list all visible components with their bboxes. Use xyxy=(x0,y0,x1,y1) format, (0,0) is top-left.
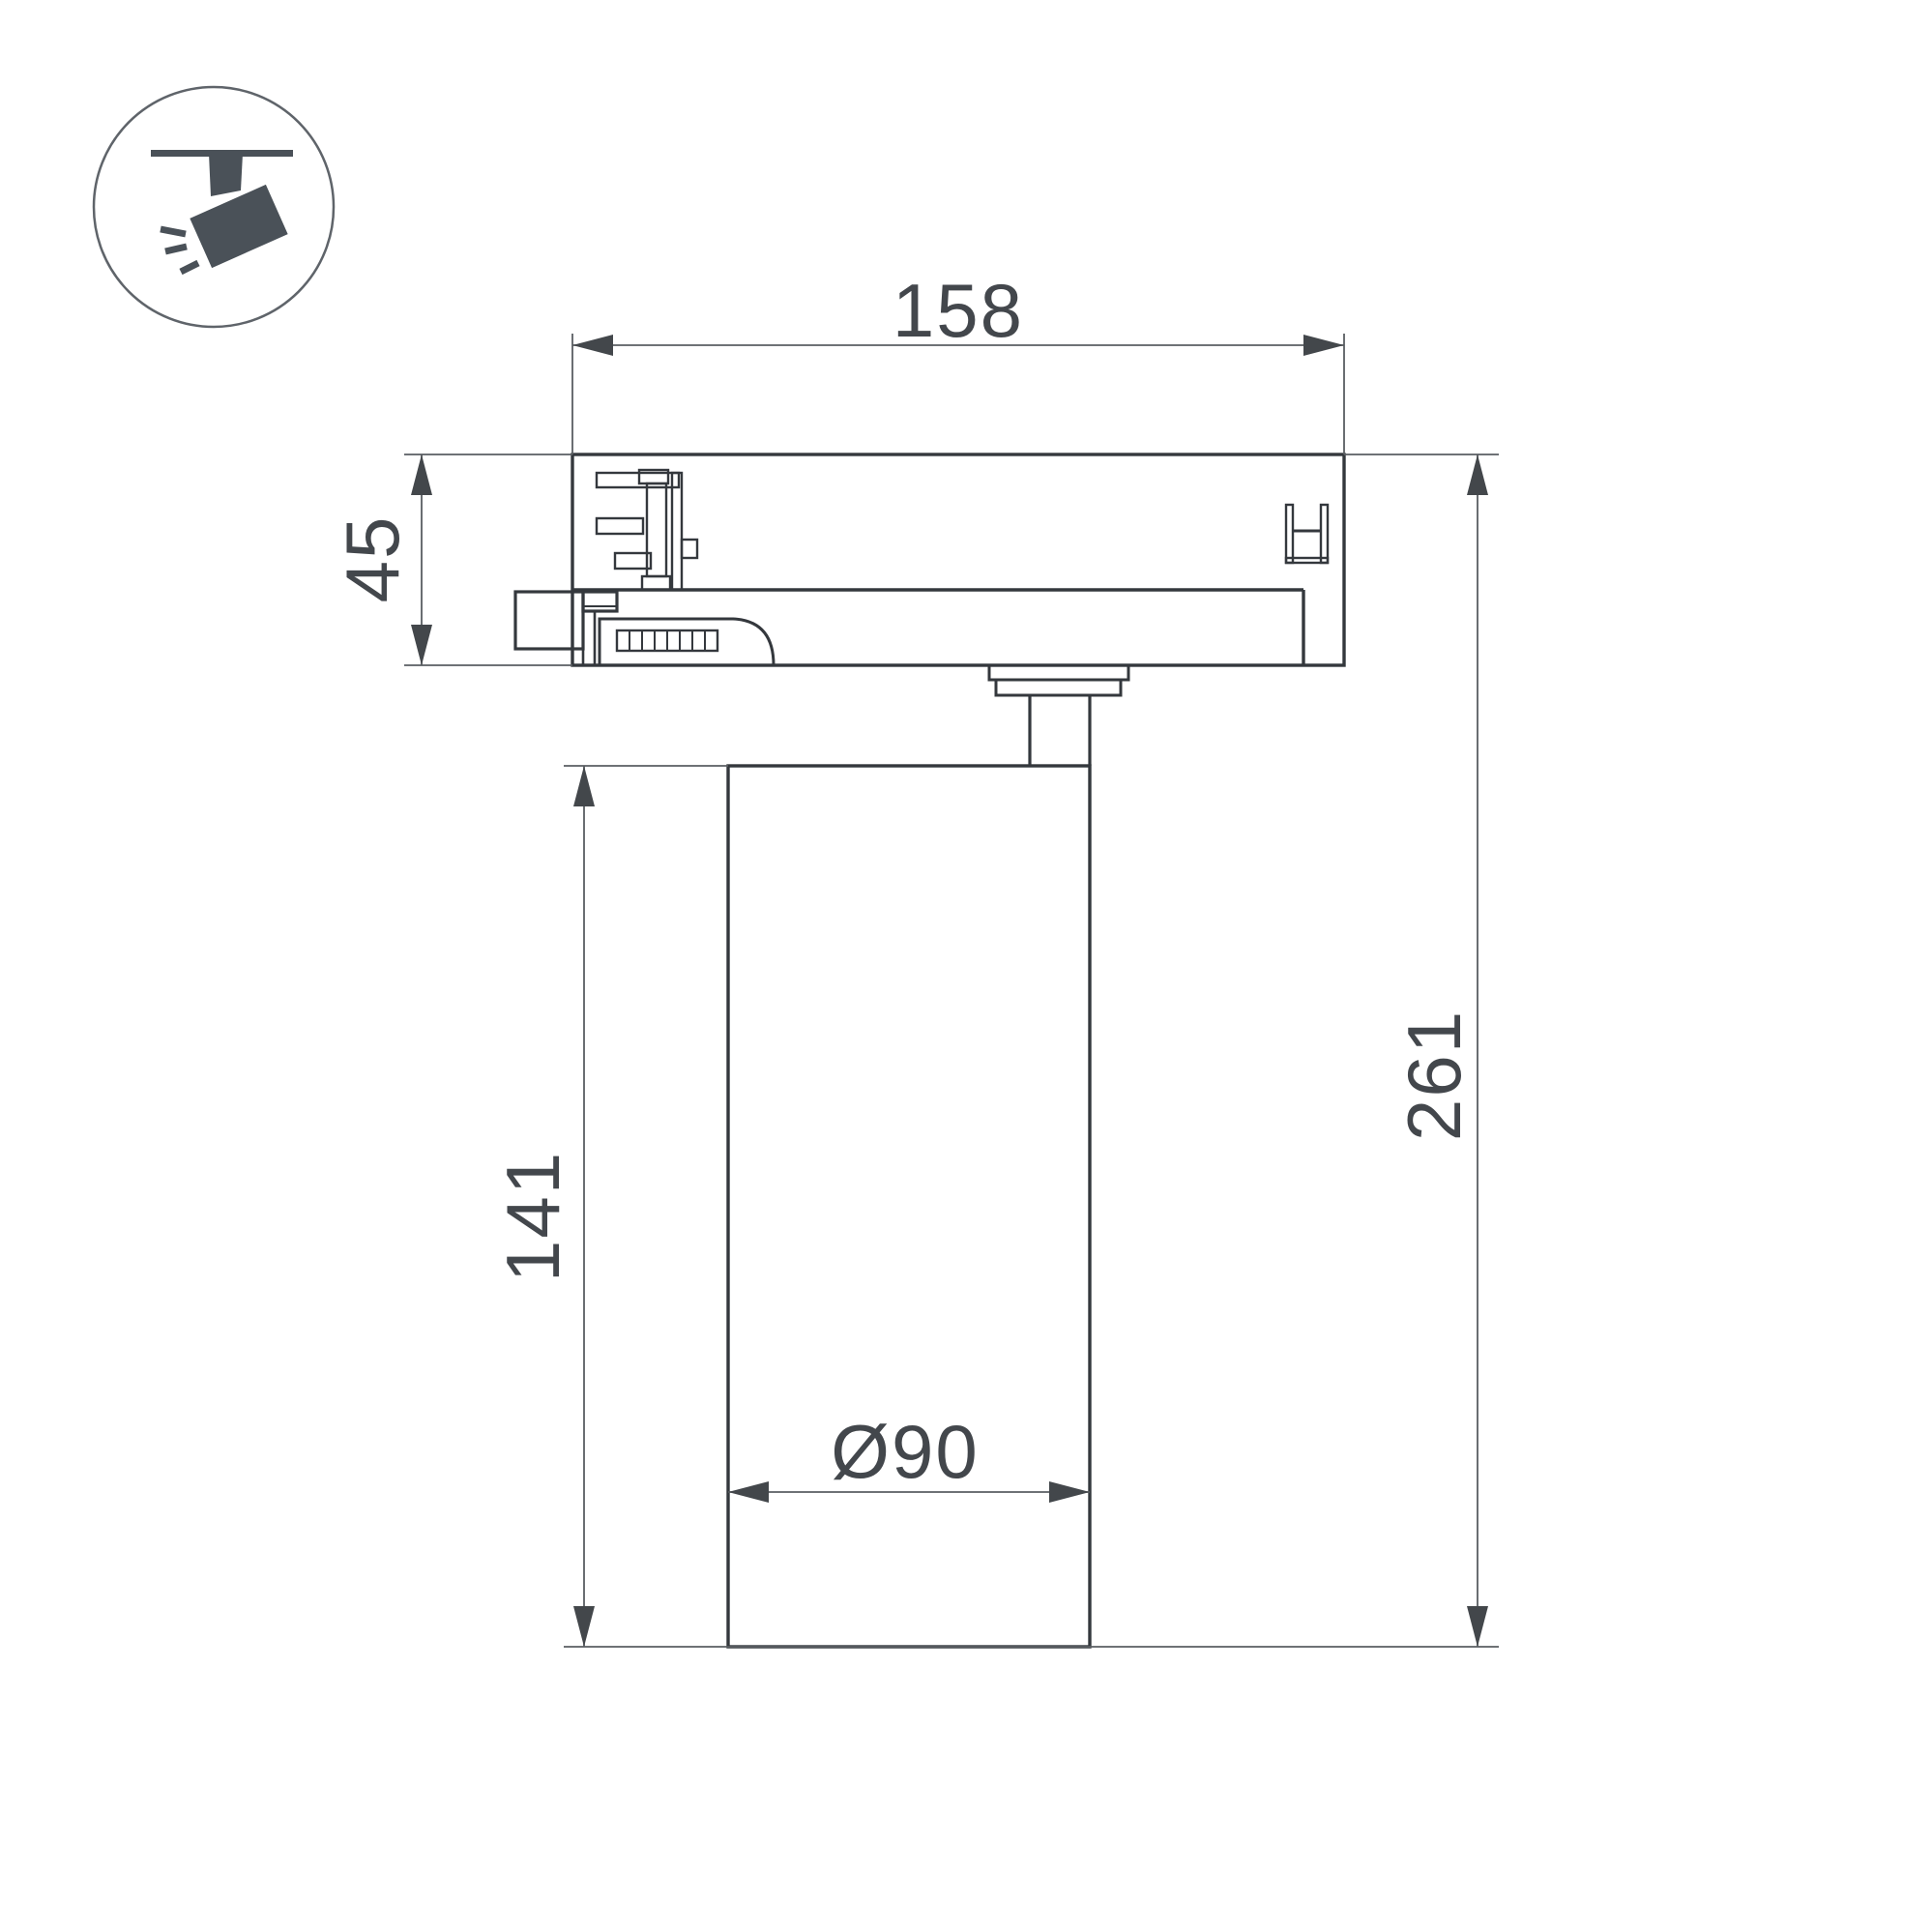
dim-141: 141 xyxy=(490,766,728,1647)
dim-141-label: 141 xyxy=(490,1151,575,1282)
dim-90-label: Ø90 xyxy=(831,1409,979,1494)
mount-stem xyxy=(1030,695,1090,766)
connector-plate xyxy=(672,473,682,590)
mount-flange xyxy=(989,665,1128,766)
latch-connector xyxy=(583,611,595,665)
adjuster-housing xyxy=(600,619,774,665)
dim-45-arrow-bottom xyxy=(411,625,432,665)
vent-grill-slats xyxy=(629,630,705,651)
flange-step-1 xyxy=(989,665,1128,680)
dim-90-arrow-left xyxy=(728,1481,769,1503)
dim-261-label: 261 xyxy=(1391,1010,1477,1141)
drawing-canvas: 158 45 141 261 xyxy=(0,0,1932,1932)
connector-prong-low xyxy=(615,553,651,569)
dim-45-label: 45 xyxy=(330,515,415,603)
housing-outline xyxy=(600,619,774,665)
icon-light-rays xyxy=(161,229,198,272)
icon-stem xyxy=(209,154,243,196)
dim-45-arrow-top xyxy=(411,454,432,495)
dim-158-arrow-right xyxy=(1303,335,1344,356)
flange-step-2 xyxy=(996,680,1121,695)
connector-foot xyxy=(642,576,670,590)
spotlight-glyph xyxy=(151,150,293,272)
dim-261: 261 xyxy=(1344,454,1499,1647)
connector-prong-mid xyxy=(597,518,643,534)
dim-261-arrow-top xyxy=(1467,454,1488,495)
dim-141-arrow-top xyxy=(573,766,595,806)
dim-261-arrow-bottom xyxy=(1467,1606,1488,1647)
latch-assembly xyxy=(515,592,617,665)
dim-158-label: 158 xyxy=(893,268,1024,353)
dim-diameter-90: Ø90 xyxy=(728,1409,1090,1503)
power-connector xyxy=(597,470,697,590)
connector-side-tab xyxy=(682,540,697,558)
track-adapter-box xyxy=(572,454,1344,665)
dim-141-arrow-bottom xyxy=(573,1606,595,1647)
track-spotlight-icon xyxy=(94,87,334,327)
latch-tab xyxy=(583,592,617,611)
dim-158-arrow-left xyxy=(572,335,613,356)
clip-left-leg xyxy=(1286,505,1293,563)
dim-90-arrow-right xyxy=(1049,1481,1090,1503)
lamp-body xyxy=(728,766,1090,1647)
icon-lamp-head xyxy=(190,185,287,268)
dim-45: 45 xyxy=(330,454,572,665)
dimension-annotations: 158 45 141 261 xyxy=(330,268,1499,1647)
ground-clip xyxy=(1286,505,1328,563)
clip-right-leg xyxy=(1321,505,1328,563)
technical-drawing: 158 45 141 261 xyxy=(0,0,1932,1932)
icon-circle xyxy=(94,87,334,327)
dim-158: 158 xyxy=(572,268,1344,454)
